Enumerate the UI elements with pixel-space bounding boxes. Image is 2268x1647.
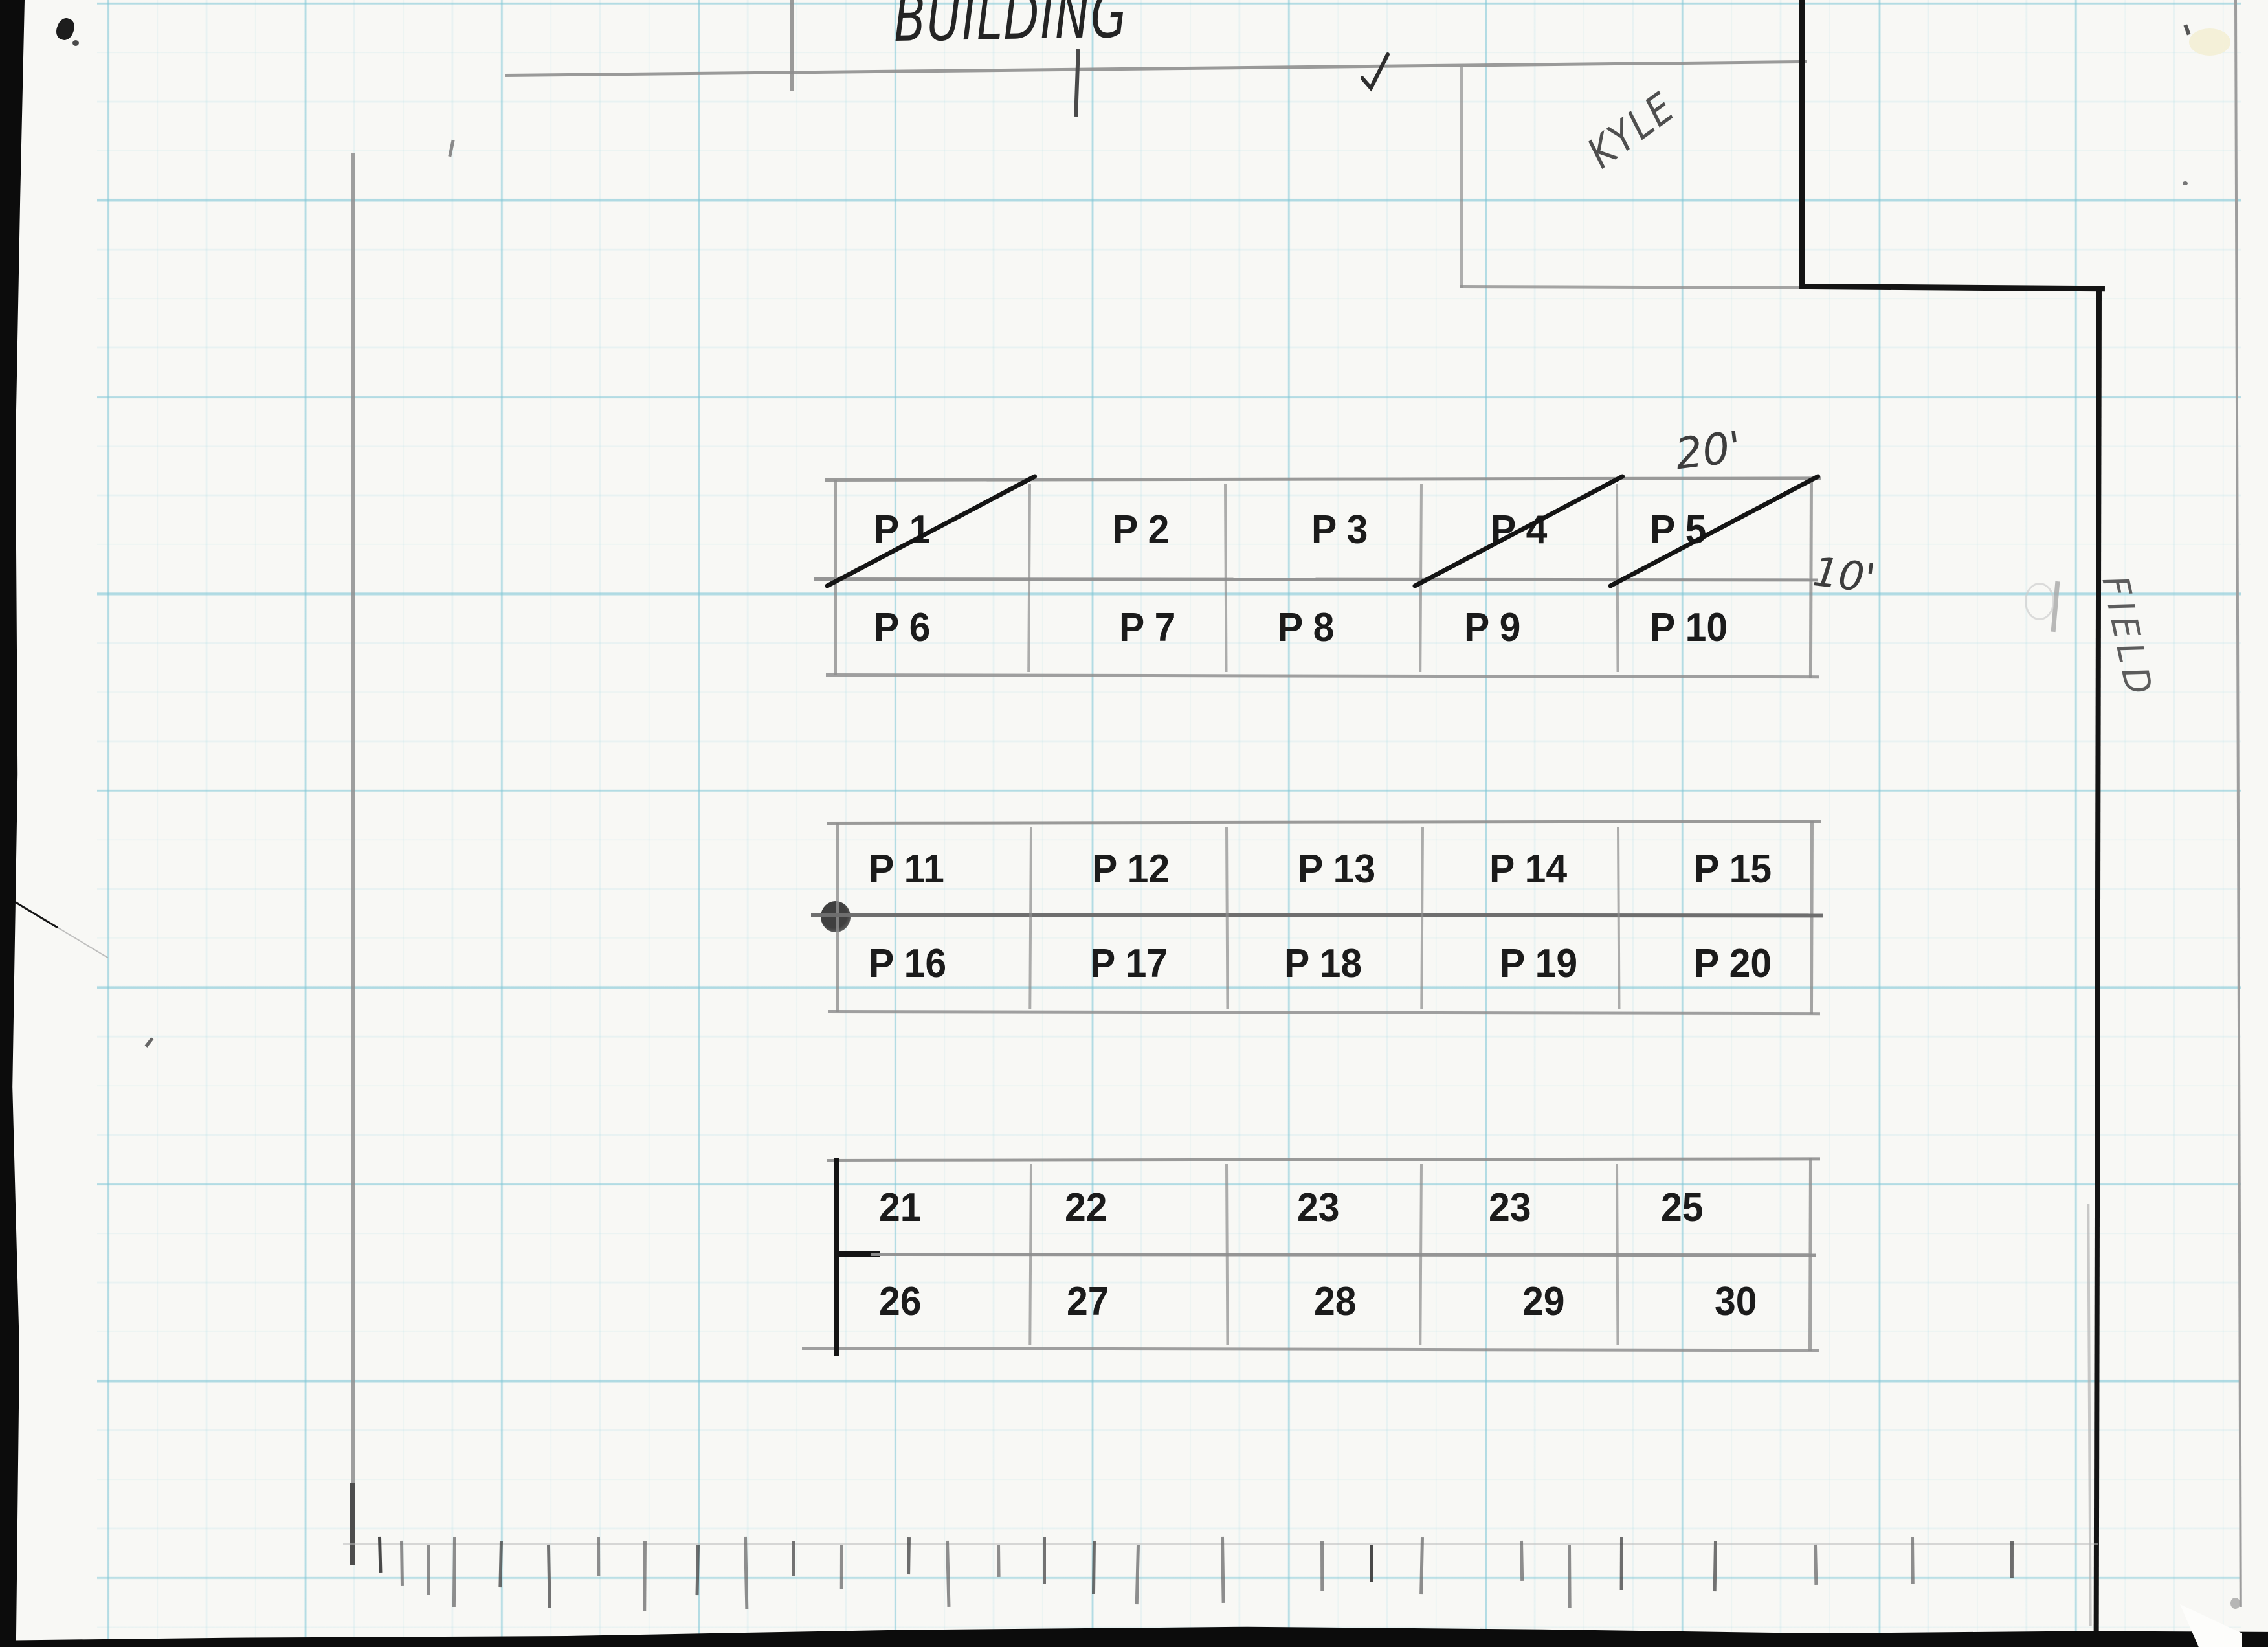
parking-space-p5: P 5 [1617,480,1813,579]
parking-space-label: 21 [879,1161,922,1255]
left-boundary-line [351,153,355,1565]
parking-space-29: 29 [1421,1255,1617,1349]
parking-space-label: 23 [1489,1161,1531,1255]
measurement-tick [400,1541,404,1586]
measurement-tick [997,1545,1001,1577]
parking-space-label: P 20 [1694,915,1772,1012]
measurement-tick [1620,1537,1623,1590]
parking-space-p12: P 12 [1031,823,1227,915]
parking-space-28: 28 [1227,1255,1422,1349]
wall-check-mark [1361,52,1392,95]
parking-space-label: 25 [1661,1161,1704,1255]
parking-space-21: 21 [836,1161,1031,1255]
parking-space-label: 23 [1297,1161,1340,1255]
parking-space-p3: P 3 [1225,480,1421,579]
parking-space-label: P 3 [1311,480,1368,579]
parking-space-22: 22 [1031,1161,1227,1255]
smudge-mark [2183,181,2188,185]
parking-space-p10: P 10 [1617,579,1813,675]
measurement-tick [1320,1541,1324,1591]
parking-space-23: 23 [1227,1161,1422,1255]
parking-space-p16: P 16 [836,915,1031,1012]
parking-space-p20: P 20 [1618,915,1814,1012]
kyle-room-left-wall [1460,67,1463,288]
parking-space-label: P 19 [1500,915,1577,1012]
measurement-tick [1568,1545,1572,1608]
measurement-tick [597,1537,600,1576]
measurement-tick [643,1541,647,1611]
parking-space-p17: P 17 [1031,915,1227,1012]
parking-space-label: 22 [1065,1161,1107,1255]
paper-edge-end-smudge [2230,1598,2240,1609]
building-label: BUILDING [893,0,1128,56]
measurement-tick [840,1545,843,1589]
left-boundary-line-dark-end [350,1483,355,1565]
parking-space-p8: P 8 [1225,579,1421,675]
measurement-tick [2010,1541,2014,1578]
parking-space-label: P 12 [1092,823,1170,915]
parking-space-p2: P 2 [1030,480,1226,579]
parking-space-p18: P 18 [1227,915,1422,1012]
parking-space-p4: P 4 [1421,480,1618,579]
parking-space-label: P 13 [1298,823,1375,915]
parking-space-p7: P 7 [1030,579,1226,675]
measurement-tick [427,1545,430,1595]
parking-space-p9: P 9 [1421,579,1618,675]
parking-space-label: P 14 [1489,823,1567,915]
measurement-tick [907,1537,911,1574]
parking-space-25: 25 [1617,1161,1812,1255]
parking-space-label: P 15 [1694,823,1772,915]
parking-space-label: 26 [879,1255,922,1349]
parking-space-p14: P 14 [1423,823,1618,915]
cross-out-line [1412,473,1625,588]
parking-space-p1: P 1 [834,480,1030,579]
parking-space-label: 27 [1067,1255,1109,1349]
building-wall-stub [790,0,794,91]
parking-space-label: P 17 [1090,915,1168,1012]
scanned-parking-lot-plan: BUILDING KYLE 20' 10' FIELD P 1P 2P 3P 4… [0,0,2268,1647]
parking-space-p19: P 19 [1423,915,1618,1012]
parking-space-label: P 10 [1650,579,1728,675]
measurement-tick [1911,1537,1915,1584]
parking-space-label: P 9 [1464,579,1520,675]
parking-block-3: 21222323252627282930 [836,1161,1812,1349]
parking-space-label: P 16 [869,915,946,1012]
paper-stain [2189,28,2230,56]
smudge-mark [72,40,79,46]
cross-out-line [1608,473,1821,588]
measurement-tick [1092,1541,1096,1594]
parking-space-p6: P 6 [834,579,1030,675]
parking-space-30: 30 [1617,1255,1812,1349]
scan-edge-left [0,0,26,1647]
parking-space-p13: P 13 [1227,823,1422,915]
parking-space-label: 28 [1314,1255,1357,1349]
parking-space-p15: P 15 [1618,823,1814,915]
parking-space-26: 26 [836,1255,1031,1349]
parking-block-2: P 11P 12P 13P 14P 15P 16P 17P 18P 19P 20 [836,823,1814,1012]
parking-space-27: 27 [1031,1255,1227,1349]
parking-space-label: 29 [1522,1255,1565,1349]
measurement-tick [792,1541,795,1576]
parking-block-1: P 1P 2P 3P 4P 5P 6P 7P 8P 9P 10 [834,480,1813,675]
smudge-mark [54,16,77,43]
measurement-tick [1043,1537,1046,1584]
smudge-mark [2025,583,2054,620]
parking-space-p11: P 11 [836,823,1031,915]
parking-space-label: P 6 [874,579,930,675]
parking-space-label: P 8 [1278,579,1334,675]
building-corner-wall-vertical [1799,0,1805,289]
measurement-tick [1370,1545,1373,1582]
parking-space-label: P 11 [869,823,944,915]
parking-space-label: P 2 [1113,480,1169,579]
parking-space-label: 30 [1715,1255,1757,1349]
cross-out-line [825,473,1038,588]
dimension-20ft-label: 20' [1673,422,1744,480]
parking-space-label: P 7 [1119,579,1175,675]
parking-space-23: 23 [1421,1161,1617,1255]
parking-space-label: P 18 [1284,915,1362,1012]
